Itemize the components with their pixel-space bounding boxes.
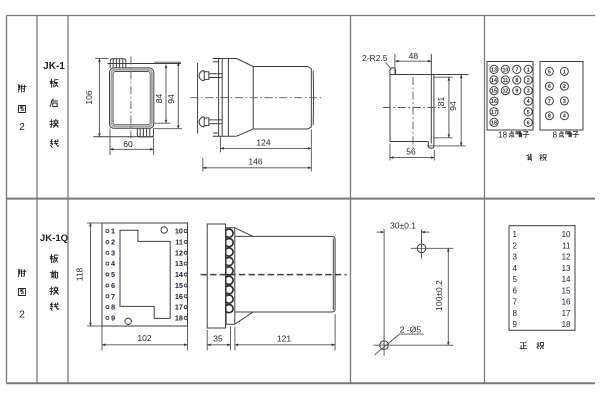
svg-text:18: 18 <box>562 320 571 329</box>
svg-text:1: 1 <box>527 67 530 73</box>
svg-text:5: 5 <box>527 110 530 116</box>
svg-text:124: 124 <box>256 137 270 147</box>
svg-text:11: 11 <box>562 241 571 250</box>
svg-text:14: 14 <box>491 78 497 84</box>
svg-text:2 -Ø5: 2 -Ø5 <box>400 324 422 334</box>
svg-text:7: 7 <box>111 292 115 301</box>
svg-text:18: 18 <box>175 314 183 323</box>
svg-text:10: 10 <box>175 227 183 236</box>
svg-text:9: 9 <box>515 89 518 95</box>
svg-text:18: 18 <box>498 131 507 140</box>
svg-text:2: 2 <box>527 78 530 84</box>
svg-text:JK-1Q: JK-1Q <box>40 233 69 244</box>
svg-text:3: 3 <box>527 89 530 95</box>
svg-text:17: 17 <box>562 309 571 318</box>
svg-text:15: 15 <box>562 286 571 295</box>
svg-text:5: 5 <box>513 275 518 284</box>
svg-text:4: 4 <box>513 264 518 273</box>
svg-text:2: 2 <box>19 122 25 133</box>
svg-text:48: 48 <box>409 51 419 61</box>
svg-text:14: 14 <box>175 270 184 279</box>
svg-text:146: 146 <box>248 157 262 167</box>
svg-text:84: 84 <box>154 94 164 104</box>
svg-text:1: 1 <box>563 69 566 75</box>
svg-text:7: 7 <box>513 298 518 307</box>
svg-text:4: 4 <box>527 99 530 105</box>
svg-text:94: 94 <box>166 94 176 104</box>
svg-text:94: 94 <box>448 101 458 111</box>
svg-text:9: 9 <box>513 320 518 329</box>
svg-text:12: 12 <box>502 89 508 95</box>
svg-text:3: 3 <box>111 248 115 257</box>
svg-text:6: 6 <box>527 120 530 126</box>
svg-text:6: 6 <box>111 281 115 290</box>
svg-text:18: 18 <box>491 120 497 126</box>
svg-text:14: 14 <box>562 275 571 284</box>
svg-text:12: 12 <box>175 248 183 257</box>
svg-text:100±0.2: 100±0.2 <box>434 280 444 311</box>
svg-text:6: 6 <box>548 84 551 90</box>
svg-text:2: 2 <box>563 84 566 90</box>
svg-text:10: 10 <box>502 67 508 73</box>
svg-text:2-R2.5: 2-R2.5 <box>362 53 388 63</box>
svg-text:2: 2 <box>513 241 518 250</box>
svg-text:16: 16 <box>175 292 183 301</box>
svg-text:5: 5 <box>548 69 551 75</box>
svg-text:106: 106 <box>84 90 94 104</box>
svg-text:8: 8 <box>513 309 518 318</box>
svg-text:102: 102 <box>137 333 151 343</box>
svg-text:8: 8 <box>515 78 518 84</box>
svg-text:118: 118 <box>75 267 85 281</box>
svg-text:4: 4 <box>563 114 566 120</box>
svg-text:17: 17 <box>175 303 183 312</box>
svg-text:3: 3 <box>563 99 566 105</box>
svg-text:10: 10 <box>562 230 571 239</box>
svg-text:8: 8 <box>111 303 115 312</box>
svg-text:13: 13 <box>175 259 183 268</box>
svg-text:11: 11 <box>175 238 183 247</box>
svg-text:1: 1 <box>513 230 518 239</box>
svg-text:121: 121 <box>277 334 291 344</box>
svg-text:30±0.1: 30±0.1 <box>390 221 416 231</box>
svg-text:8: 8 <box>548 114 551 120</box>
svg-text:8: 8 <box>553 131 558 140</box>
svg-text:15: 15 <box>175 281 183 290</box>
svg-text:81: 81 <box>436 97 446 107</box>
svg-text:2: 2 <box>19 310 25 321</box>
svg-text:35: 35 <box>213 334 223 344</box>
svg-text:13: 13 <box>491 67 497 73</box>
svg-text:16: 16 <box>491 99 497 105</box>
svg-text:7: 7 <box>548 99 551 105</box>
svg-text:56: 56 <box>406 147 416 157</box>
svg-text:JK-1: JK-1 <box>43 61 65 72</box>
svg-text:3: 3 <box>513 253 518 262</box>
svg-text:13: 13 <box>562 264 571 273</box>
svg-text:12: 12 <box>562 253 571 262</box>
svg-text:15: 15 <box>491 89 497 95</box>
svg-text:1: 1 <box>111 227 115 236</box>
svg-text:16: 16 <box>562 298 571 307</box>
svg-text:17: 17 <box>491 110 497 116</box>
svg-text:6: 6 <box>513 286 518 295</box>
svg-text:2: 2 <box>111 238 115 247</box>
svg-text:60: 60 <box>123 139 133 149</box>
svg-text:11: 11 <box>503 78 509 84</box>
svg-text:7: 7 <box>515 67 518 73</box>
svg-text:5: 5 <box>111 270 115 279</box>
svg-text:9: 9 <box>111 314 115 323</box>
